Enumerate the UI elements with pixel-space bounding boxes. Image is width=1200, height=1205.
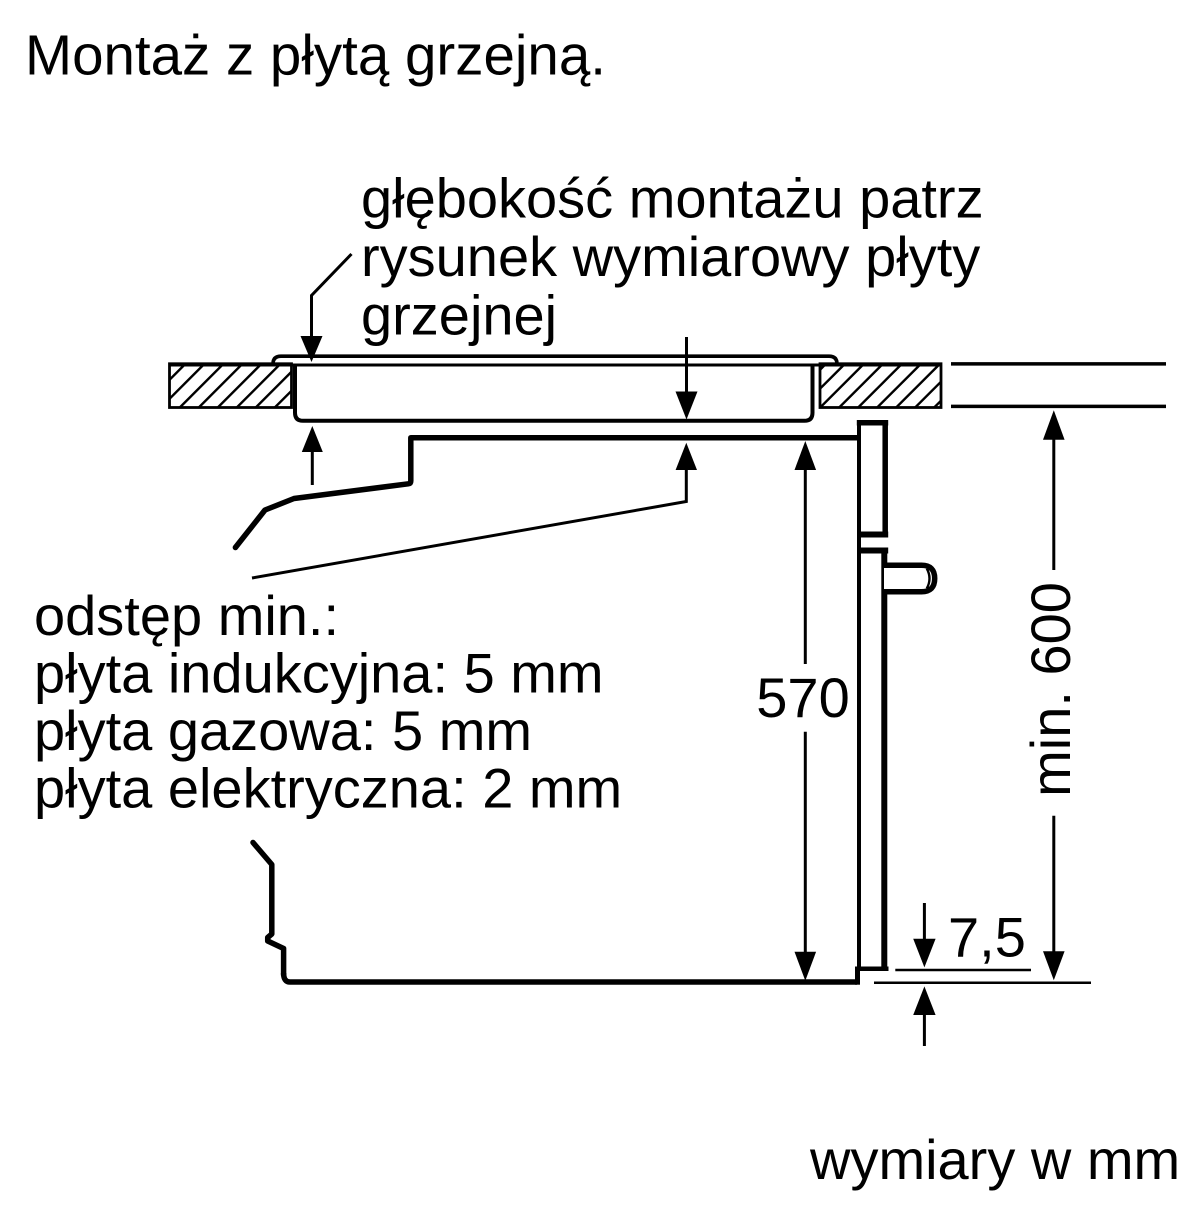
svg-text:płyta gazowa: 5 mm: płyta gazowa: 5 mm — [34, 699, 532, 762]
svg-text:odstęp min.:: odstęp min.: — [34, 584, 339, 647]
svg-text:grzejnej: grzejnej — [361, 284, 557, 347]
svg-text:płyta indukcyjna: 5 mm: płyta indukcyjna: 5 mm — [34, 642, 604, 705]
svg-text:570: 570 — [756, 666, 849, 729]
svg-text:Montaż z płytą grzejną.: Montaż z płytą grzejną. — [25, 23, 606, 86]
svg-text:7,5: 7,5 — [948, 906, 1026, 969]
svg-text:płyta elektryczna: 2 mm: płyta elektryczna: 2 mm — [34, 757, 622, 820]
svg-text:min. 600: min. 600 — [1019, 582, 1082, 797]
svg-text:wymiary w mm: wymiary w mm — [809, 1128, 1180, 1191]
svg-text:rysunek wymiarowy płyty: rysunek wymiarowy płyty — [361, 225, 980, 288]
svg-text:głębokość montażu patrz: głębokość montażu patrz — [361, 167, 984, 230]
